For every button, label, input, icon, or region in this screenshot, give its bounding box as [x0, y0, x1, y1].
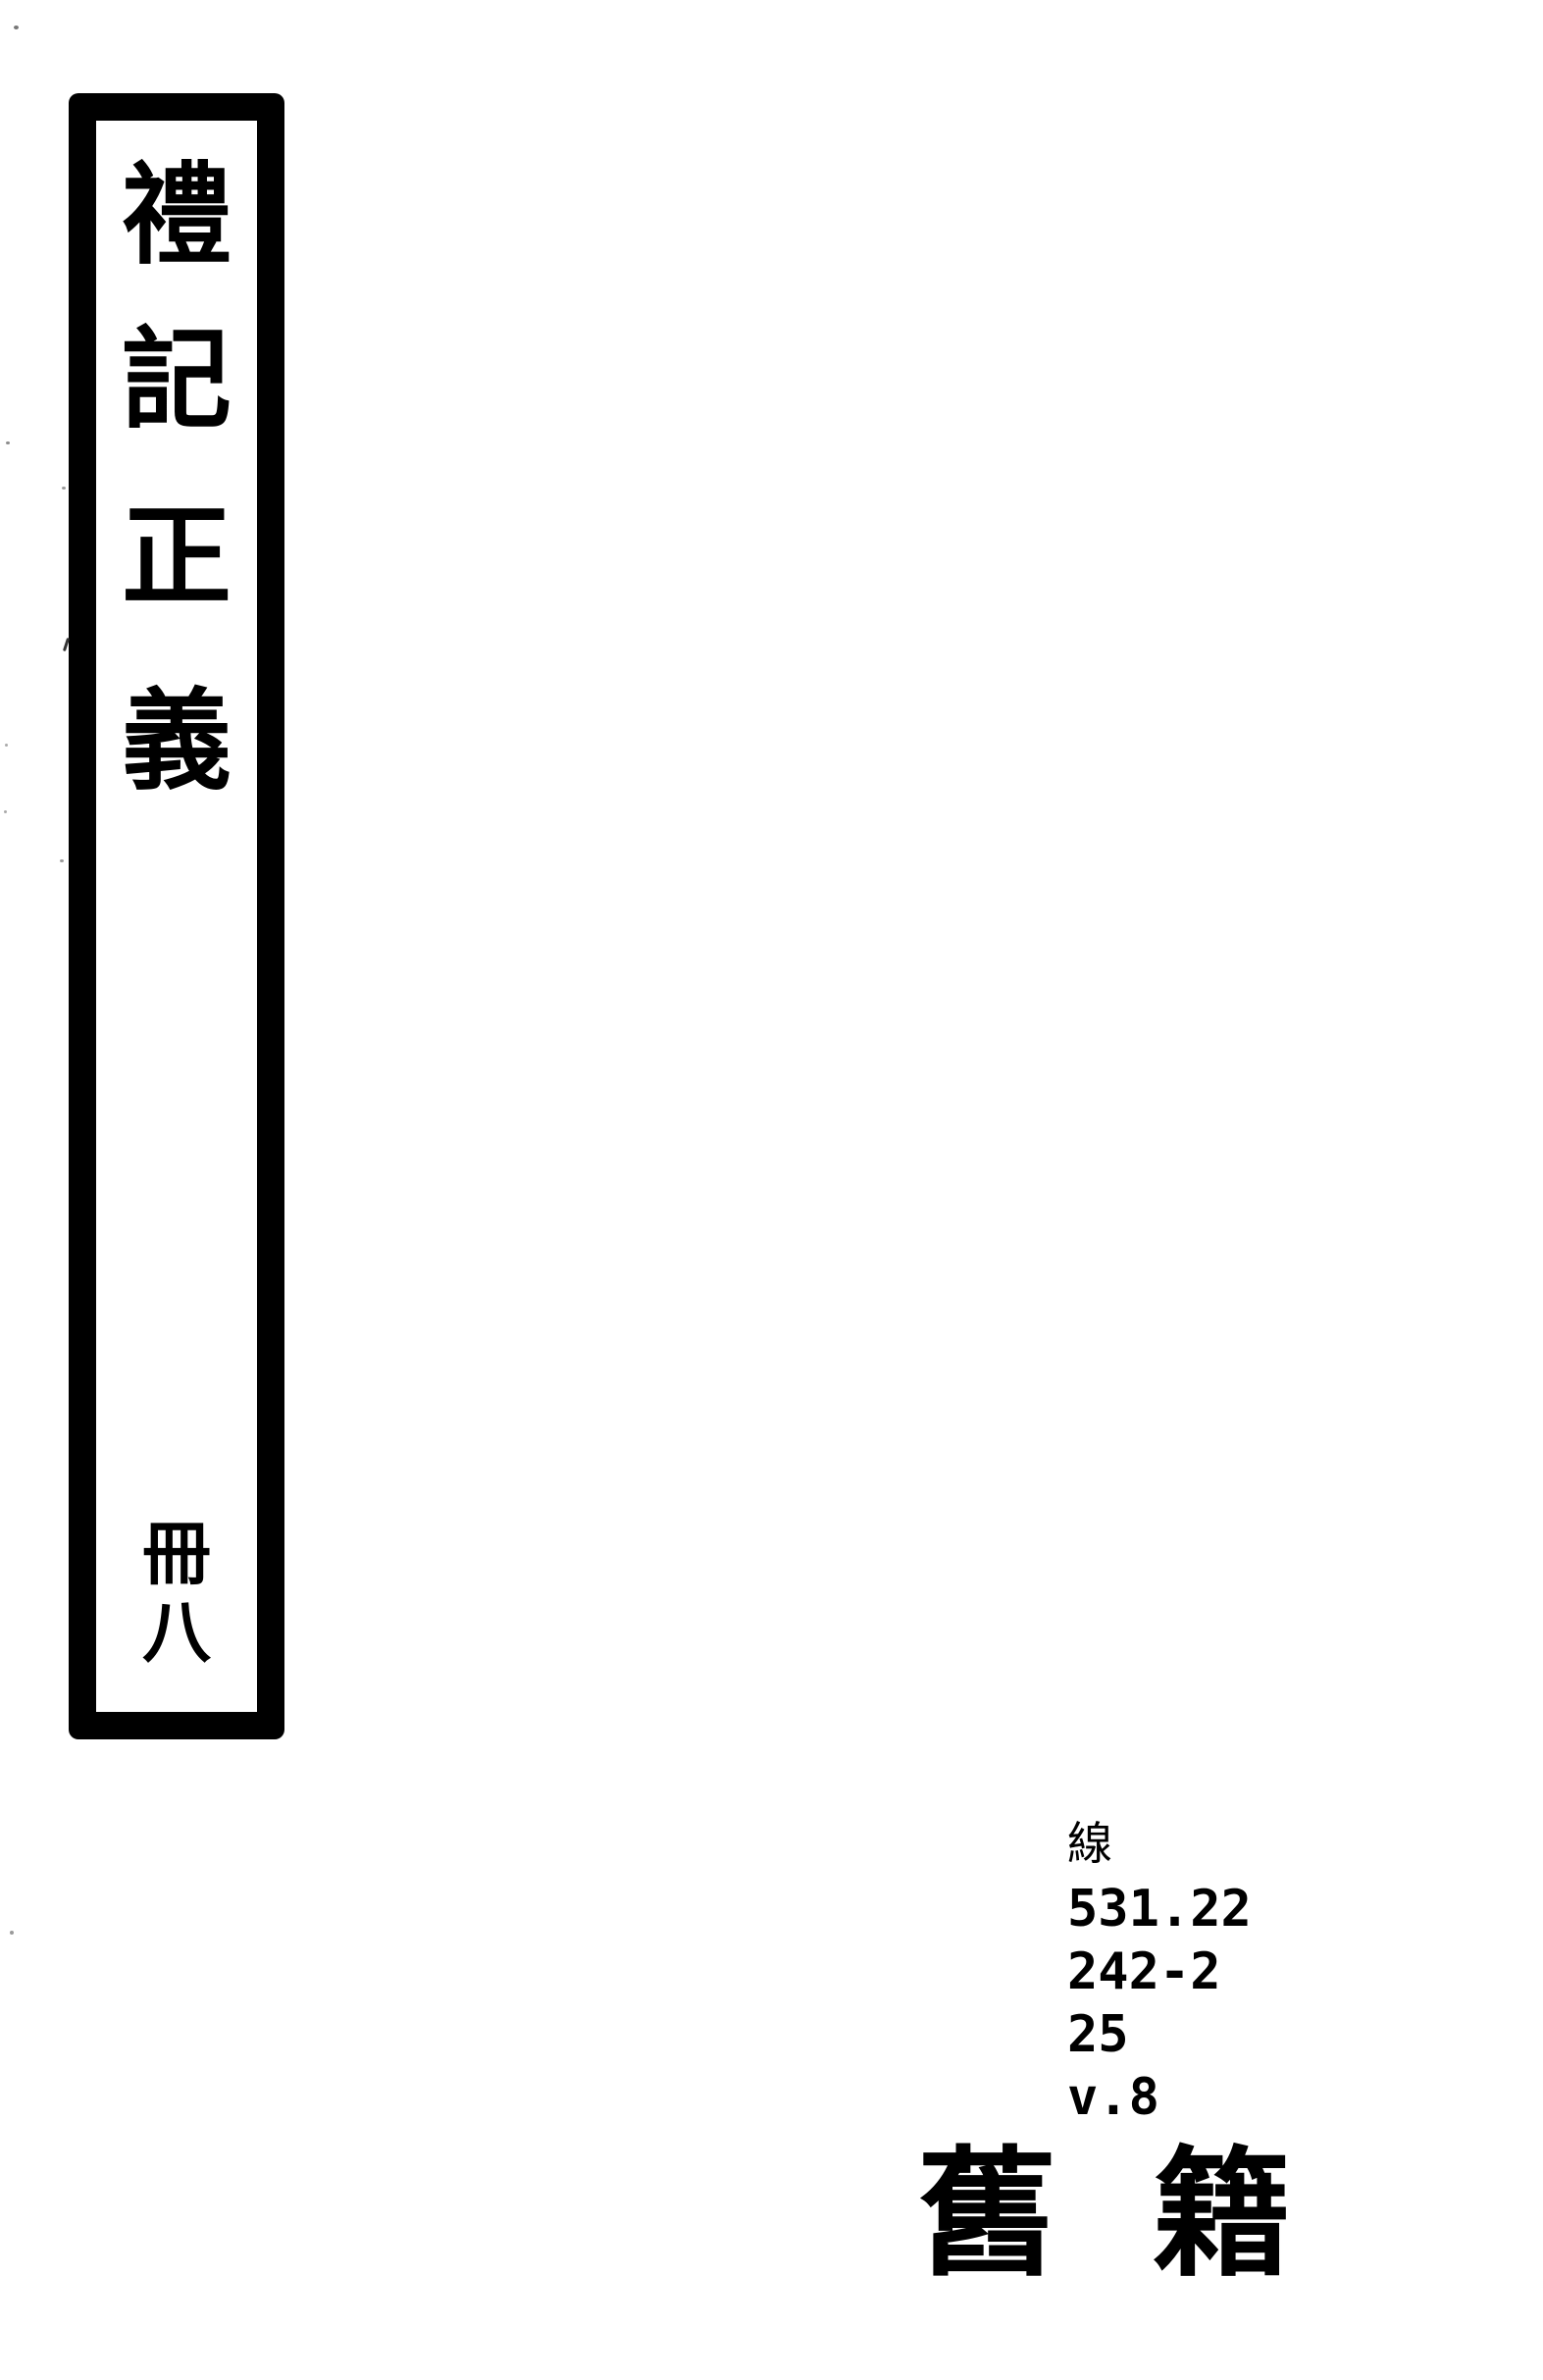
spine-volume-char-2: 八: [142, 1598, 211, 1667]
spine-title-char-2: 記: [122, 326, 231, 436]
collection-label-char-2: 籍: [1153, 2145, 1292, 2284]
scan-speck: [6, 441, 10, 444]
call-number-line-1: 531.22: [1067, 1878, 1252, 1940]
spine-title-char-4: 義: [122, 687, 231, 797]
collection-label-char-1: 舊: [917, 2145, 1056, 2284]
call-number-line-4: v.8: [1067, 2066, 1252, 2129]
call-number-prefix: 線: [1067, 1821, 1252, 1866]
scan-speck: [10, 1931, 14, 1935]
scanned-book-cover-page: 禮 記 正 義 冊 八 線 531.22 242-2 25 v.8 舊 籍: [0, 0, 1543, 2380]
spine-title-char-3: 正: [122, 502, 231, 612]
scan-speck: [60, 859, 64, 862]
scan-speck: [5, 744, 8, 747]
spine-title-char-1: 禮: [122, 161, 231, 271]
call-number-line-3: 25: [1067, 2003, 1252, 2066]
scan-speck: [62, 487, 66, 490]
spine-volume-char-1: 冊: [142, 1520, 211, 1588]
call-number-line-2: 242-2: [1067, 1940, 1252, 2003]
scan-speck: [14, 26, 19, 29]
spine-title-box: 禮 記 正 義 冊 八: [69, 93, 284, 1739]
call-number-block: 線 531.22 242-2 25 v.8: [1067, 1821, 1252, 2129]
scan-speck: [4, 810, 7, 813]
